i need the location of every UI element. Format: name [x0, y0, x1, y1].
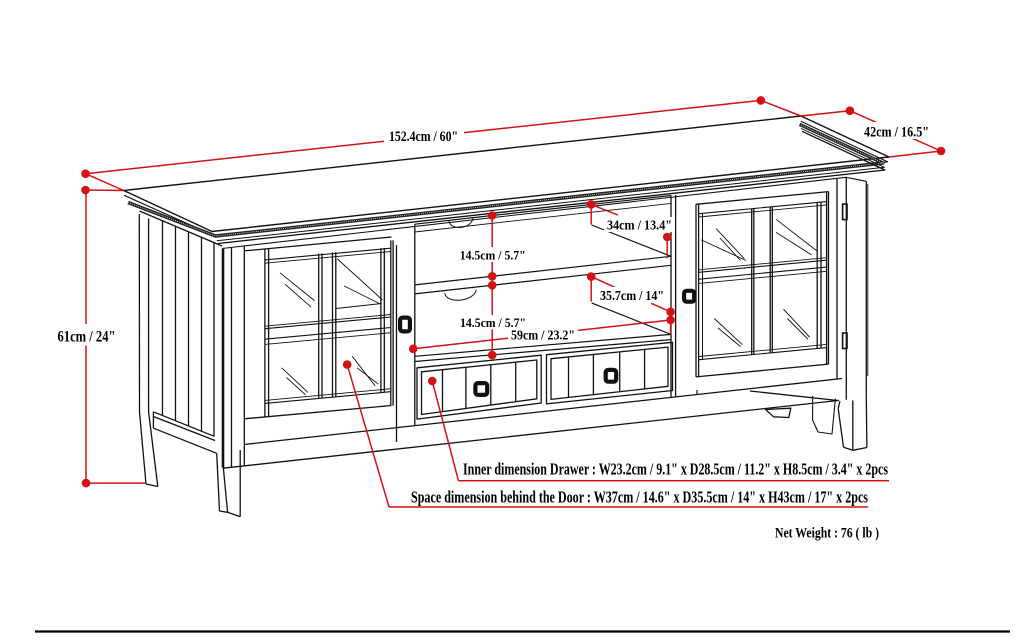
svg-text:Net Weight : 76 ( lb ): Net Weight : 76 ( lb ) [775, 526, 879, 542]
svg-text:34cm / 13.4": 34cm / 13.4" [607, 219, 672, 234]
svg-text:35.7cm / 14": 35.7cm / 14" [600, 288, 664, 303]
svg-text:42cm / 16.5": 42cm / 16.5" [864, 125, 929, 141]
svg-text:Space dimension behind the Doo: Space dimension behind the Door : W37cm … [411, 488, 868, 507]
svg-text:152.4cm / 60": 152.4cm / 60" [389, 129, 458, 145]
svg-text:14.5cm / 5.7": 14.5cm / 5.7" [460, 248, 526, 262]
svg-text:Inner dimension Drawer : W23.2: Inner dimension Drawer : W23.2cm / 9.1" … [463, 460, 888, 479]
svg-text:61cm / 24": 61cm / 24" [58, 329, 116, 346]
svg-text:59cm / 23.2": 59cm / 23.2" [511, 328, 575, 343]
